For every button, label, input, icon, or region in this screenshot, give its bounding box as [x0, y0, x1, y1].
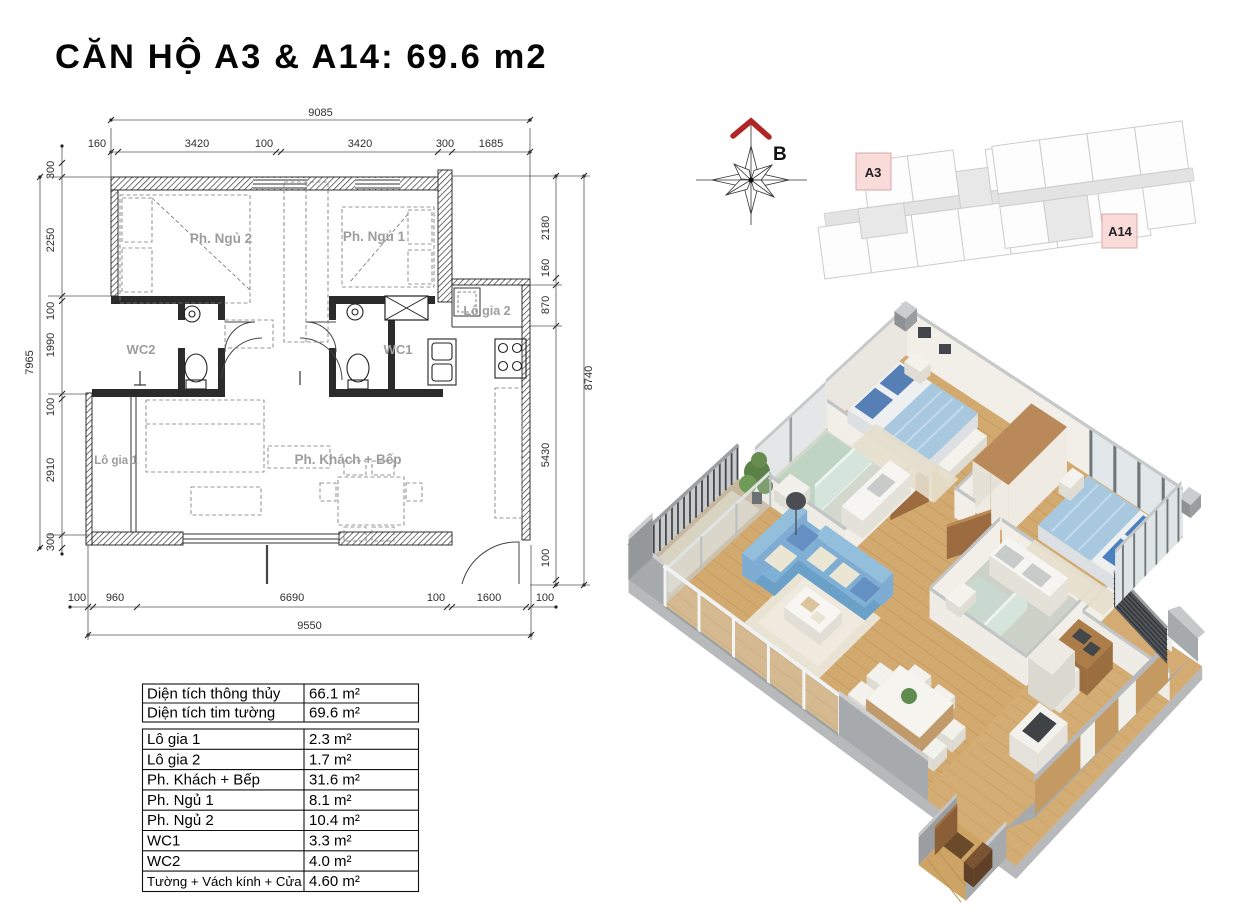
svg-text:WC1: WC1: [384, 342, 413, 357]
svg-text:A14: A14: [1108, 224, 1133, 239]
svg-text:2250: 2250: [45, 228, 57, 252]
svg-text:2910: 2910: [45, 458, 57, 482]
svg-text:2180: 2180: [540, 216, 552, 240]
svg-text:Lô gia 1: Lô gia 1: [147, 731, 200, 748]
svg-text:31.6 m²: 31.6 m²: [309, 772, 360, 789]
svg-text:Ph. Khách + Bếp: Ph. Khách + Bếp: [147, 772, 260, 789]
svg-text:Ph. Ngủ 2: Ph. Ngủ 2: [147, 812, 214, 829]
svg-text:Lô gia 2: Lô gia 2: [463, 304, 510, 318]
svg-text:Ph. Ngủ 1: Ph. Ngủ 1: [343, 229, 406, 244]
svg-text:WC2: WC2: [127, 342, 156, 357]
svg-text:CĂN HỘ A3 & A14: 69.6 m2: CĂN HỘ A3 & A14: 69.6 m2: [55, 36, 548, 76]
svg-text:4.60 m²: 4.60 m²: [309, 873, 360, 890]
svg-text:1990: 1990: [45, 333, 57, 357]
svg-text:Lô gia 1: Lô gia 1: [94, 455, 138, 467]
svg-text:Diện tích tim tường: Diện tích tim tường: [147, 705, 275, 722]
svg-text:160: 160: [88, 138, 106, 150]
svg-text:8740: 8740: [583, 366, 595, 390]
svg-text:Tường + Vách kính + Cửa: Tường + Vách kính + Cửa: [147, 874, 302, 889]
svg-text:5430: 5430: [540, 443, 552, 467]
svg-text:100: 100: [536, 592, 554, 604]
svg-text:300: 300: [45, 161, 57, 179]
svg-text:Ph. Ngủ 2: Ph. Ngủ 2: [190, 231, 252, 246]
svg-text:10.4 m²: 10.4 m²: [309, 812, 360, 829]
svg-text:300: 300: [45, 533, 57, 551]
svg-text:2.3 m²: 2.3 m²: [309, 731, 352, 748]
svg-text:9550: 9550: [297, 620, 321, 632]
svg-text:B: B: [773, 144, 787, 165]
svg-text:100: 100: [68, 592, 86, 604]
svg-text:Ph. Khách + Bếp: Ph. Khách + Bếp: [295, 452, 402, 467]
svg-text:Diện tích thông thủy: Diện tích thông thủy: [147, 686, 281, 703]
svg-text:160: 160: [540, 259, 552, 277]
svg-text:960: 960: [106, 592, 124, 604]
svg-text:WC2: WC2: [147, 853, 180, 870]
svg-text:66.1 m²: 66.1 m²: [309, 686, 360, 703]
svg-text:1685: 1685: [479, 138, 503, 150]
svg-text:1600: 1600: [477, 592, 501, 604]
svg-text:4.0 m²: 4.0 m²: [309, 853, 352, 870]
svg-text:3420: 3420: [185, 138, 209, 150]
svg-text:100: 100: [255, 138, 273, 150]
svg-text:300: 300: [436, 138, 454, 150]
svg-text:100: 100: [45, 398, 57, 416]
svg-text:WC1: WC1: [147, 833, 180, 850]
svg-text:100: 100: [540, 549, 552, 567]
svg-text:69.6 m²: 69.6 m²: [309, 705, 360, 722]
svg-text:100: 100: [45, 302, 57, 320]
svg-text:6690: 6690: [280, 592, 304, 604]
svg-text:1.7 m²: 1.7 m²: [309, 751, 352, 768]
svg-text:Ph. Ngủ 1: Ph. Ngủ 1: [147, 792, 214, 809]
svg-text:3.3 m²: 3.3 m²: [309, 833, 352, 850]
svg-text:7965: 7965: [24, 350, 36, 374]
svg-text:100: 100: [427, 592, 445, 604]
svg-text:8.1 m²: 8.1 m²: [309, 792, 352, 809]
svg-text:A3: A3: [865, 165, 882, 180]
svg-text:9085: 9085: [308, 107, 332, 119]
svg-text:3420: 3420: [348, 138, 372, 150]
svg-text:Lô gia 2: Lô gia 2: [147, 751, 200, 768]
svg-text:870: 870: [540, 296, 552, 314]
